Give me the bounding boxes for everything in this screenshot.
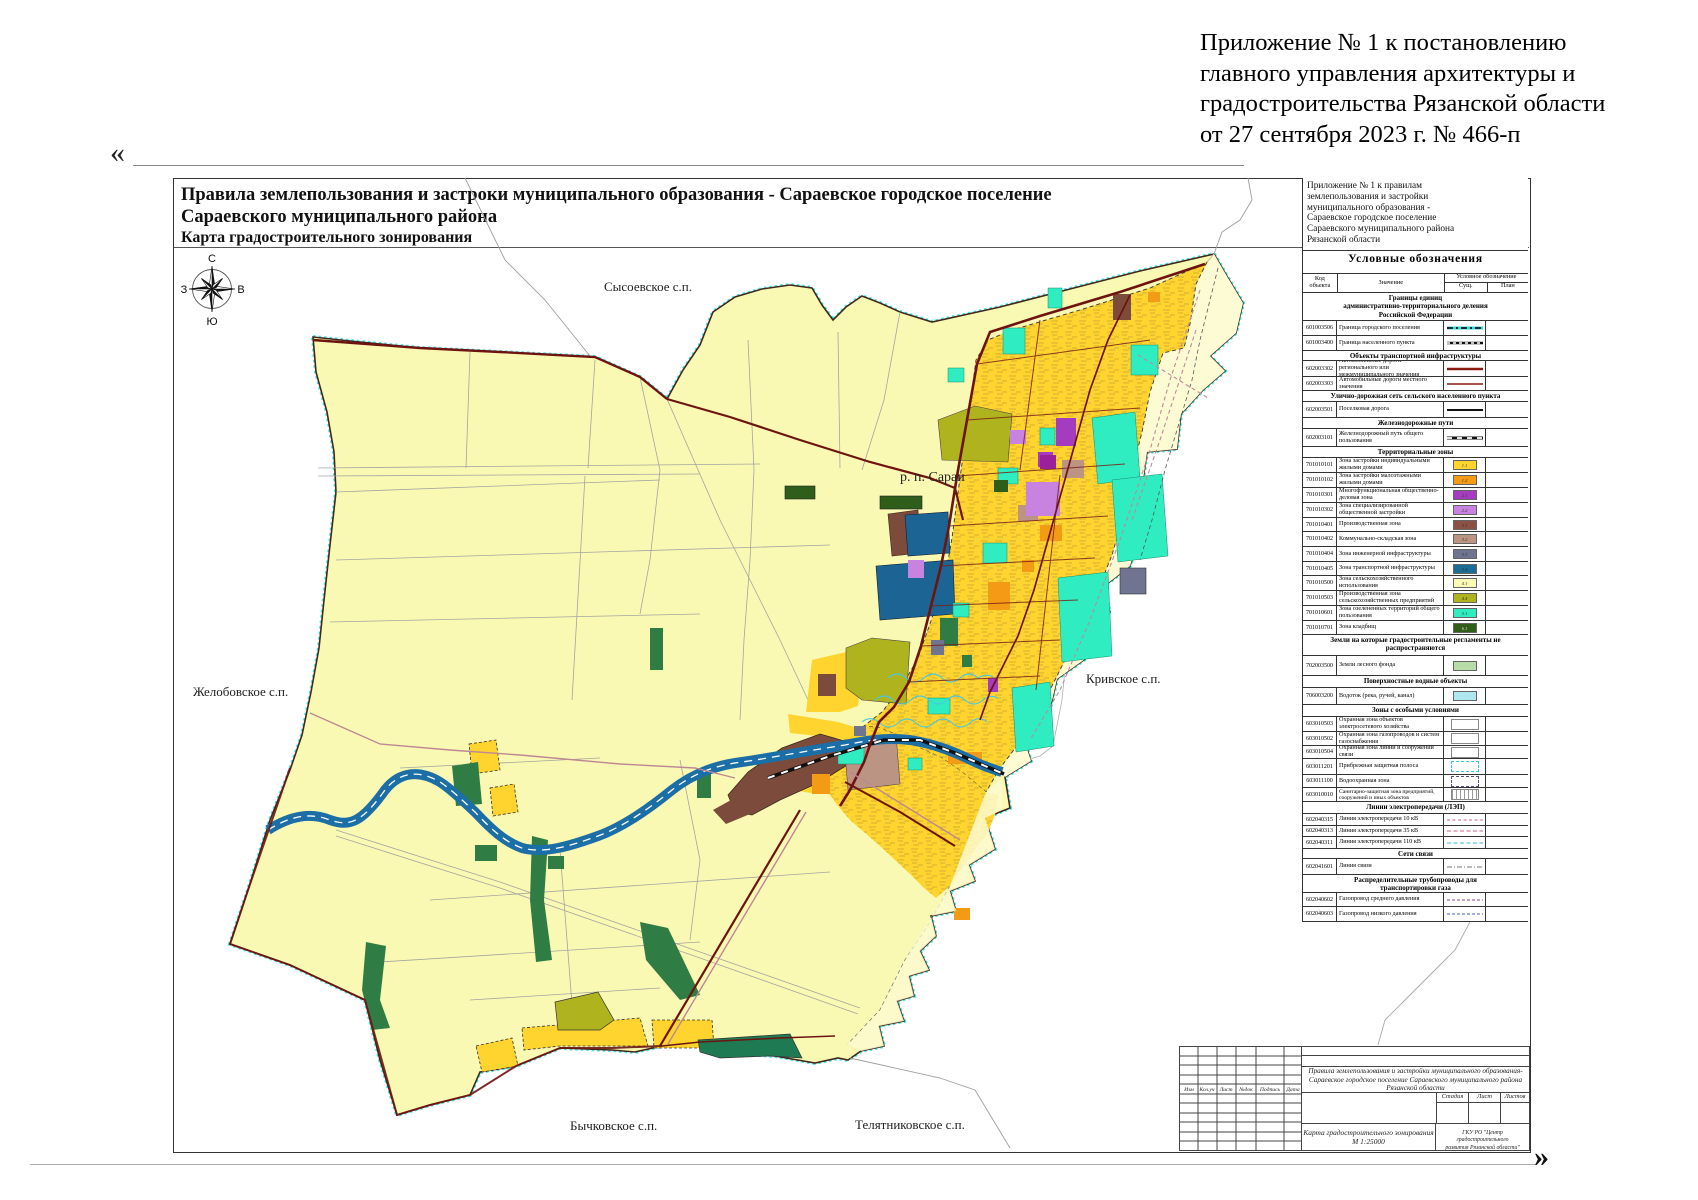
svg-text:№док: №док <box>1238 1086 1253 1093</box>
svg-text:Кол.уч: Кол.уч <box>1198 1087 1214 1093</box>
svg-text:Телятниковское с.п.: Телятниковское с.п. <box>855 1117 965 1132</box>
svg-text:Подпись: Подпись <box>1259 1086 1281 1093</box>
svg-text:Дата: Дата <box>1285 1087 1299 1093</box>
svg-text:Кривское с.п.: Кривское с.п. <box>1086 671 1161 686</box>
svg-text:Лист: Лист <box>1218 1087 1232 1093</box>
svg-text:Ю: Ю <box>206 316 217 328</box>
svg-text:Изм: Изм <box>1183 1087 1194 1093</box>
svg-text:Бычковское с.п.: Бычковское с.п. <box>570 1118 657 1133</box>
svg-text:З: З <box>181 284 188 296</box>
svg-text:Желобовское с.п.: Желобовское с.п. <box>193 684 288 699</box>
svg-text:С: С <box>208 253 216 265</box>
svg-text:р. п. Сараи: р. п. Сараи <box>900 470 965 485</box>
svg-text:Сысоевское с.п.: Сысоевское с.п. <box>604 279 692 294</box>
svg-text:В: В <box>237 284 244 296</box>
